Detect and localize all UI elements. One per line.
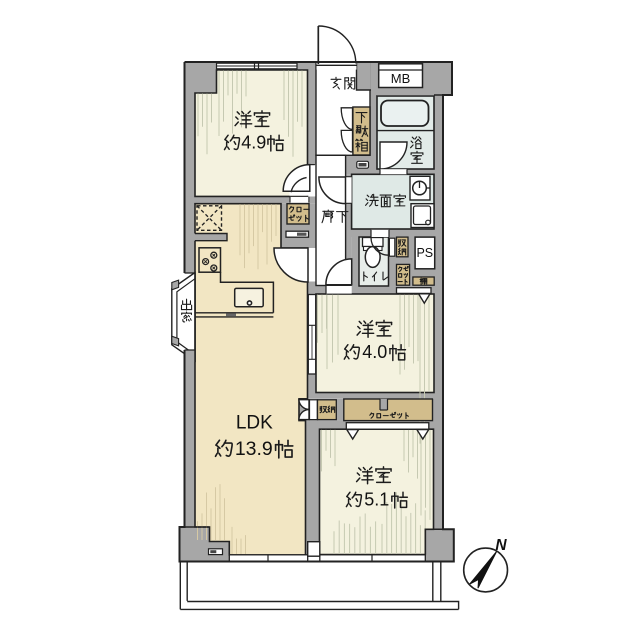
svg-text:5.1: 5.1 [364,489,389,509]
svg-text:MB: MB [391,71,411,86]
svg-text:13.9: 13.9 [235,438,273,460]
svg-text:4.0: 4.0 [362,342,387,362]
svg-text:LDK: LDK [236,413,273,434]
svg-text:N: N [495,537,507,554]
svg-text:PS: PS [416,246,433,260]
svg-text:4.9: 4.9 [241,132,266,152]
